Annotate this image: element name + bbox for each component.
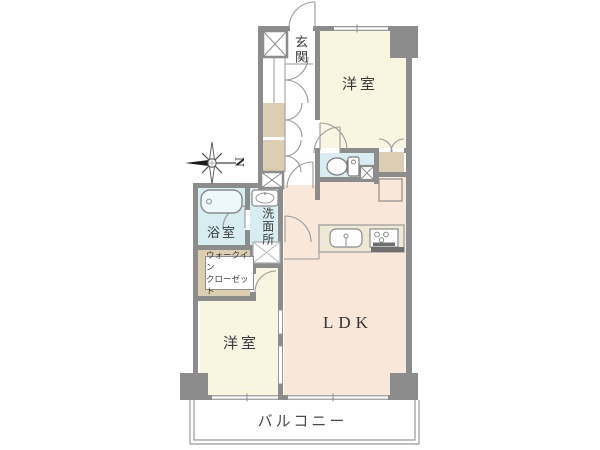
compass-north-label: N <box>232 157 248 166</box>
walkin-closet-label: ウォークイン クローゼット <box>205 256 254 290</box>
wash-basin-icon <box>252 190 278 206</box>
walkin-closet-label-line1: ウォークイン <box>206 249 253 273</box>
sliding-doors <box>279 310 283 384</box>
bedroom-bottom-label: 洋室 <box>211 336 271 353</box>
toilet-icon <box>327 157 359 176</box>
floor-plan: 玄関 洋室 浴室 洗面所 ウォークイン クローゼット 洋室 LDK バルコニー … <box>0 0 600 450</box>
stove-icon <box>370 229 398 247</box>
bedroom-top-closet <box>377 152 404 172</box>
column-bottom-right <box>390 373 418 400</box>
hall-closet-doors <box>285 57 308 172</box>
bathroom-label: 浴室 <box>200 226 244 241</box>
column-top-right <box>390 26 418 58</box>
pipe-space-icon <box>263 31 287 57</box>
compass-icon <box>185 142 236 184</box>
bedroom-top-label: 洋室 <box>330 77 390 94</box>
hall-closet-lower <box>263 140 285 172</box>
floor-plan-drawing <box>0 0 600 450</box>
ldk-floor <box>284 177 406 395</box>
counter-end-panel <box>371 247 404 252</box>
entrance-label: 玄関 <box>292 35 307 65</box>
duct-box-icon <box>261 172 283 188</box>
bathtub-icon <box>201 190 242 213</box>
walkin-closet-label-line2: クローゼット <box>206 273 253 297</box>
toilet-pipe-space-icon <box>360 166 374 180</box>
ldk-label: LDK <box>316 313 380 333</box>
kitchen-sink-icon <box>330 229 362 247</box>
column-bottom-left <box>180 373 208 400</box>
washroom-label: 洗面所 <box>260 207 274 246</box>
hall-closet-upper <box>263 103 285 137</box>
entrance-door <box>289 2 315 28</box>
balcony-label: バルコニー <box>240 414 365 431</box>
